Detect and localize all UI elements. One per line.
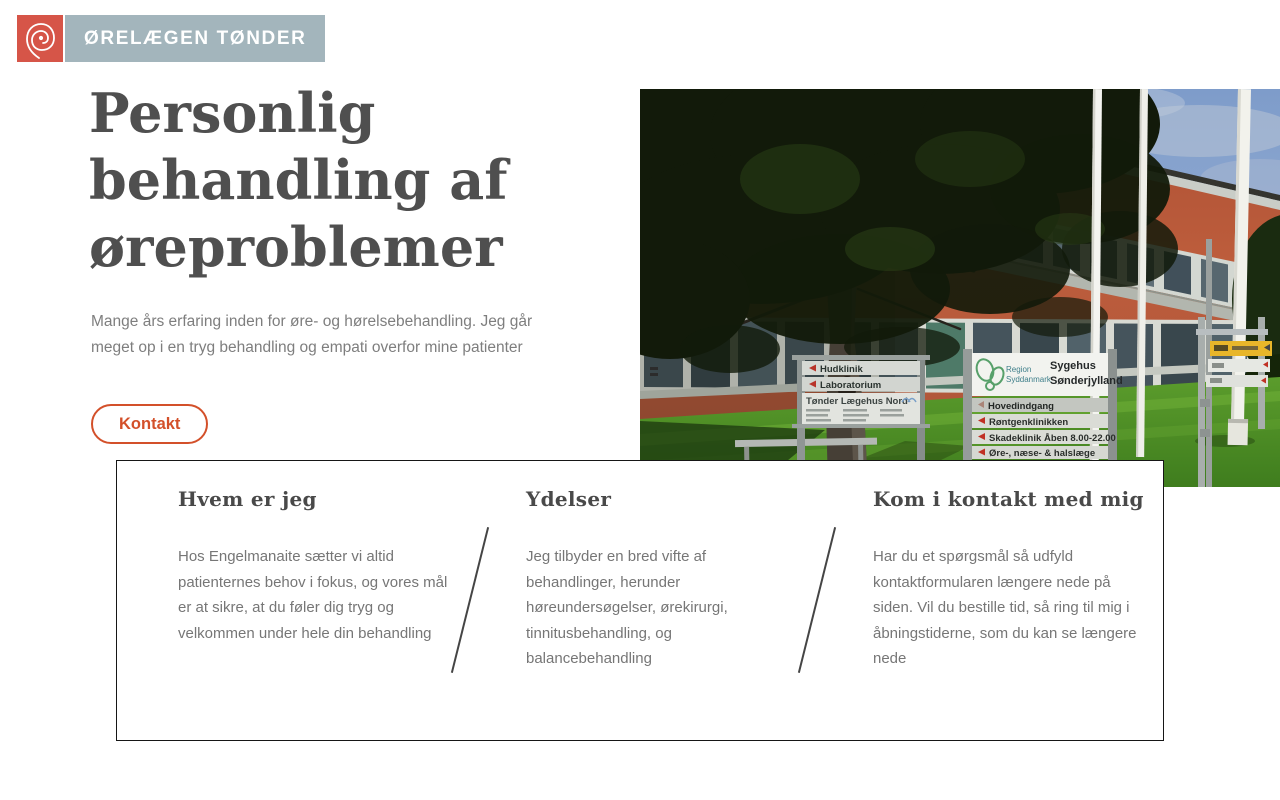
card-hvem-er-jeg: Hvem er jeg Hos Engelmanaite sætter vi a… — [178, 487, 456, 646]
sign-row-roentgen: Røntgenklinikken — [989, 417, 1068, 428]
hospital-name-2: Sønderjylland — [1050, 375, 1123, 387]
page-title: Personlig behandling af øreproblemer — [89, 80, 569, 281]
kontakt-button[interactable]: Kontakt — [91, 404, 208, 444]
hero-description: Mange års erfaring inden for øre- og hør… — [91, 309, 561, 360]
card-ydelser: Ydelser Jeg tilbyder en bred vifte af be… — [526, 487, 786, 672]
sign-row-hudklinik: Hudklinik — [820, 364, 863, 375]
brand-name: ØRELÆGEN TØNDER — [65, 15, 325, 62]
card-body: Hos Engelmanaite sætter vi altid patient… — [178, 544, 456, 646]
diagonal-divider — [451, 527, 489, 673]
card-title: Ydelser — [526, 487, 786, 511]
sign-row-oere-naese: Øre-, næse- & halslæge — [989, 448, 1095, 459]
card-title: Kom i kontakt med mig — [873, 487, 1151, 511]
card-body: Jeg tilbyder en bred vifte af behandling… — [526, 544, 786, 672]
sign-row-hovedindgang: Hovedindgang — [988, 401, 1054, 412]
region-text-2: Syddanmark — [1006, 375, 1052, 384]
brand-logo[interactable]: ØRELÆGEN TØNDER — [17, 15, 325, 62]
card-body: Har du et spørgsmål så udfyld kontaktfor… — [873, 544, 1151, 672]
hospital-name-1: Sygehus — [1050, 360, 1096, 372]
info-card: Hvem er jeg Hos Engelmanaite sætter vi a… — [116, 460, 1164, 741]
card-kontakt: Kom i kontakt med mig Har du et spørgsmå… — [873, 487, 1151, 672]
landing-page: ØRELÆGEN TØNDER Personlig behandling af … — [0, 0, 1280, 800]
sign-row-skadeklinik-hours: Åben 8.00-22.00 — [1044, 433, 1116, 444]
diagonal-divider — [798, 527, 836, 673]
region-text-1: Region — [1006, 365, 1031, 374]
sign-row-laboratorium: Laboratorium — [820, 380, 881, 391]
ear-spiral-icon — [17, 15, 63, 62]
hospital-photo: Hudklinik Laboratorium Tønder Lægehus No… — [640, 89, 1280, 487]
sign-title-laegehus: Tønder Lægehus Nord — [806, 396, 908, 407]
sign-row-skadeklinik: Skadeklinik — [989, 433, 1042, 444]
card-title: Hvem er jeg — [178, 487, 456, 511]
